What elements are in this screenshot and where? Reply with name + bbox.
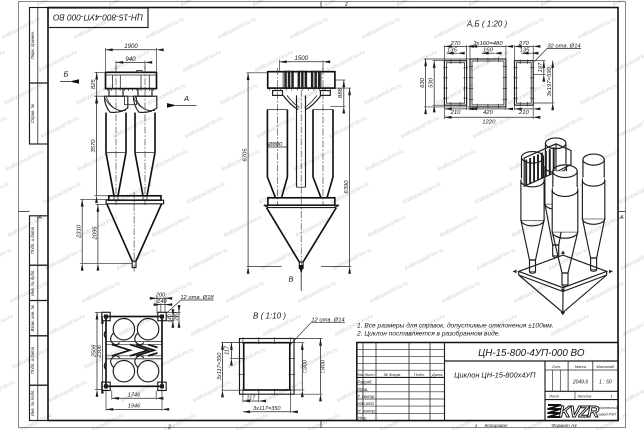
- svg-text:140: 140: [168, 314, 174, 323]
- svg-text:Утв.: Утв.: [358, 416, 367, 421]
- svg-text:3x197=590: 3x197=590: [547, 66, 553, 96]
- svg-text:Инв. № подл.: Инв. № подл.: [30, 390, 35, 417]
- svg-text:2306: 2306: [97, 344, 103, 358]
- svg-text:3x117=350: 3x117=350: [217, 352, 223, 380]
- svg-text:Листов: Листов: [577, 395, 592, 399]
- svg-text:Лит.: Лит.: [551, 365, 561, 369]
- svg-text:420: 420: [483, 110, 494, 116]
- svg-text:200: 200: [174, 312, 180, 322]
- svg-text:200: 200: [155, 292, 166, 298]
- svg-text:Масштаб: Масштаб: [597, 365, 616, 369]
- svg-text:135: 135: [520, 48, 531, 54]
- svg-text:825: 825: [91, 79, 97, 90]
- svg-text:6390: 6390: [344, 180, 350, 194]
- svg-text:Подп. и дата: Подп. и дата: [30, 226, 35, 254]
- svg-text:ЦН-15-800-4УП-000 ВО: ЦН-15-800-4УП-000 ВО: [52, 13, 143, 23]
- svg-text:197: 197: [538, 62, 544, 73]
- svg-text:Взам. инв. №: Взам. инв. №: [30, 305, 35, 332]
- svg-text:Н. контр.: Н. контр.: [358, 408, 376, 413]
- svg-text:Лист: Лист: [363, 372, 375, 377]
- svg-text:Копировал: Копировал: [485, 423, 508, 428]
- svg-text:В: В: [288, 275, 293, 284]
- svg-text:Изм: Изм: [356, 372, 364, 377]
- svg-text:Котельный: Котельный: [598, 406, 618, 410]
- svg-text:135: 135: [447, 48, 458, 54]
- svg-text:Нач.отд: Нач.отд: [358, 401, 375, 406]
- svg-text:Разраб.: Разраб.: [358, 380, 373, 385]
- svg-text:1500: 1500: [294, 55, 308, 62]
- svg-text:940: 940: [125, 56, 136, 63]
- svg-text:А: А: [619, 215, 624, 221]
- svg-text:117: 117: [225, 345, 231, 355]
- svg-text:□300: □300: [303, 359, 309, 373]
- svg-text:Т. контр.: Т. контр.: [358, 394, 376, 399]
- svg-text:2095: 2095: [92, 226, 98, 241]
- svg-text:□400: □400: [321, 359, 327, 373]
- svg-text:Б: Б: [64, 70, 69, 79]
- svg-text:№ докум.: № докум.: [384, 372, 402, 377]
- svg-text:2. Циклон поставляется в разо: 2. Циклон поставляется в разобранном вид…: [356, 330, 500, 338]
- svg-text:А: А: [183, 94, 189, 103]
- svg-text:завод РЗП: завод РЗП: [597, 413, 616, 417]
- svg-text:Подп. и дата: Подп. и дата: [30, 346, 35, 374]
- svg-text:Перв. примен.: Перв. примен.: [30, 31, 35, 60]
- svg-text:В ( 1:10 ): В ( 1:10 ): [253, 312, 286, 321]
- svg-text:KVZR: KVZR: [559, 404, 599, 421]
- svg-text:Циклон ЦН-15-800х4УП: Циклон ЦН-15-800х4УП: [454, 371, 536, 380]
- svg-text:1946: 1946: [128, 404, 141, 410]
- svg-text:1. Все размеры для справок, д: 1. Все размеры для справок, допустимые о…: [357, 321, 554, 329]
- svg-text:3x117=350: 3x117=350: [253, 406, 281, 412]
- svg-text:2: 2: [344, 2, 348, 8]
- svg-text:Формат А3: Формат А3: [551, 423, 577, 428]
- svg-text:Лист: Лист: [548, 395, 559, 399]
- svg-text:630: 630: [420, 77, 426, 88]
- svg-text:Инв. № дубл.: Инв. № дубл.: [30, 270, 35, 296]
- svg-text:1: 1: [611, 395, 613, 399]
- svg-text:1 : 50: 1 : 50: [599, 380, 612, 386]
- svg-text:117: 117: [246, 395, 256, 401]
- svg-text:1220: 1220: [482, 120, 496, 126]
- svg-text:888: 888: [338, 88, 344, 99]
- svg-text:Пров.: Пров.: [358, 387, 369, 392]
- svg-text:3570: 3570: [91, 139, 97, 153]
- svg-text:270: 270: [518, 41, 530, 47]
- svg-text:3x160=480: 3x160=480: [473, 41, 503, 47]
- svg-text:Подп.: Подп.: [414, 372, 425, 377]
- svg-text:1900: 1900: [124, 43, 138, 50]
- svg-text:2310: 2310: [77, 224, 83, 239]
- svg-text:ЦН-15-800-4УП-000 ВО: ЦН-15-800-4УП-000 ВО: [478, 348, 585, 359]
- svg-text:530: 530: [429, 77, 435, 88]
- svg-text:1: 1: [475, 423, 478, 428]
- svg-text:6705: 6705: [243, 148, 249, 162]
- svg-text:270: 270: [450, 41, 462, 47]
- svg-text:210: 210: [518, 110, 530, 116]
- svg-text:Масса: Масса: [575, 365, 586, 369]
- svg-text:Дата: Дата: [431, 372, 443, 377]
- svg-text:1746: 1746: [128, 393, 141, 399]
- svg-text:А,Б ( 1:20 ): А,Б ( 1:20 ): [466, 20, 508, 29]
- svg-text:140: 140: [157, 299, 167, 305]
- svg-text:210: 210: [450, 110, 462, 116]
- svg-text:160: 160: [483, 48, 494, 54]
- svg-text:2049,6: 2049,6: [572, 380, 589, 386]
- svg-text:2: 2: [167, 425, 171, 430]
- svg-text:Справ. №: Справ. №: [30, 103, 35, 123]
